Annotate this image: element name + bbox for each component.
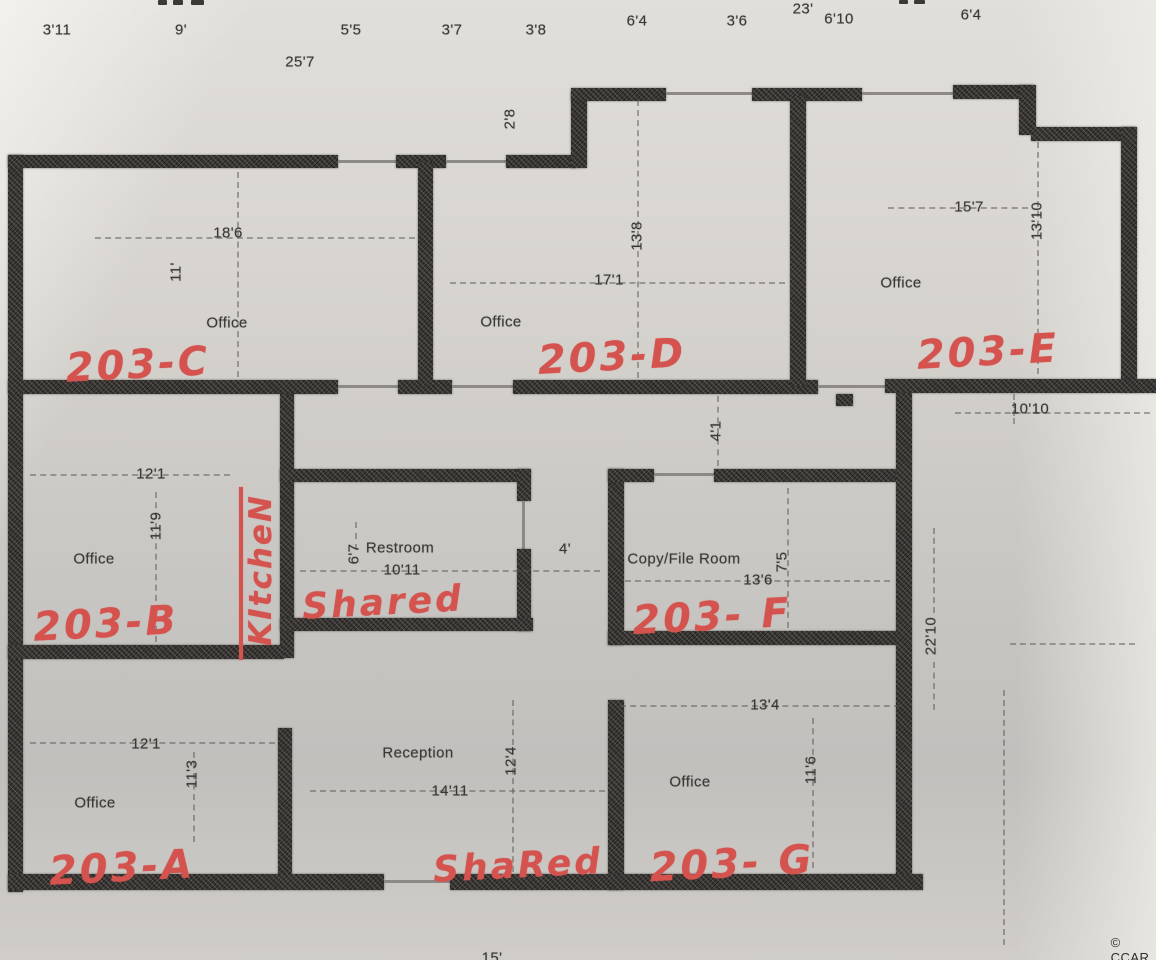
dimension-line [933,662,935,710]
floor-plan: 3'11 9' 5'5 3'7 3'8 6'4 3'6 23' 6'10 6'4… [0,0,1156,960]
wall-segment [608,469,624,645]
room-width-label: 17'1 [594,272,624,289]
room-width-label: 15'7 [954,199,984,216]
unit-annotation-203e: 203-E [916,325,1061,378]
cropped-text-fragment [899,0,908,4]
door-opening [654,473,714,476]
wall-segment [418,162,433,386]
wall-segment [896,393,912,888]
door-opening [818,385,885,388]
wall-segment [836,394,853,406]
room-type-label: Office [480,314,521,331]
dim-label: 6'4 [961,7,982,24]
room-type-label: Office [669,774,710,791]
dim-label: 10'10 [1011,401,1049,418]
room-width-label: 12'1 [136,466,166,483]
door-opening [862,92,955,95]
cropped-text-fragment [173,0,183,5]
room-width-label: 18'6 [213,225,243,242]
room-depth-label: 11'9 [148,512,165,540]
room-width-label: 13'4 [750,697,780,714]
wall-segment [517,469,531,501]
wall-segment [8,155,23,892]
shared-annotation: Shared [301,578,465,627]
wall-segment [608,700,624,890]
room-type-label: Office [880,275,921,292]
cropped-text-fragment [158,0,167,5]
wall-segment [506,155,576,168]
cropped-text-fragment [914,0,925,4]
room-depth-label: 13'10 [1029,202,1046,240]
dim-label: 2'8 [502,109,519,130]
unit-annotation-203g: 203- G [648,837,815,892]
door-opening [522,501,525,549]
room-depth-label: 11'3 [184,760,201,788]
room-depth-label: 11' [168,262,185,282]
dim-label: 3'8 [526,22,547,39]
dimension-line [1010,643,1135,645]
room-type-label: Office [74,795,115,812]
wall-segment [1121,127,1137,392]
wall-segment [571,88,666,101]
unit-annotation-203c: 203-C [65,338,212,391]
dim-label: 6'10 [824,11,854,28]
cropped-text-fragment [191,0,204,5]
dim-label: 23' [793,1,814,18]
door-opening [452,385,513,388]
wall-segment [278,728,292,888]
room-type-label: Restroom [366,540,434,557]
dim-label: 4' [559,541,571,558]
dim-label: 25'7 [285,54,315,71]
dimension-line [237,172,239,377]
dimension-line [95,237,415,239]
room-width-label: 12'1 [131,736,161,753]
unit-annotation-203d: 203-D [537,330,688,384]
dimension-line [955,412,1150,414]
dim-label-cropped: 15' [482,950,503,960]
dim-label: 6'4 [627,13,648,30]
room-depth-label: 7'5 [774,552,791,573]
room-depth-label: 11'6 [803,756,820,784]
room-depth-label: 12'4 [503,746,520,776]
room-type-label: Office [206,315,247,332]
room-type-label: Copy/File Room [627,551,740,568]
dim-label: 9' [175,22,187,39]
unit-annotation-203f: 203- F [631,590,793,644]
door-opening [338,160,396,163]
dim-label: 22'10 [923,617,940,655]
dimension-line [300,570,600,572]
wall-segment [608,469,654,482]
room-width-label: 14'11 [431,783,468,800]
room-type-label: Office [73,551,114,568]
door-opening [666,92,752,95]
dimension-line [933,528,935,613]
dim-label: 3'7 [442,22,463,39]
dim-label: 3'11 [43,22,71,39]
room-depth-label: 13'8 [629,221,646,251]
dim-label: 5'5 [341,22,362,39]
wall-segment [885,379,1156,393]
wall-segment [8,155,338,168]
wall-segment [571,92,587,168]
door-opening [446,160,506,163]
ccar-watermark: © CCAR [1111,935,1150,960]
unit-annotation-203a: 203-A [48,841,196,895]
wall-segment [280,469,530,482]
dim-label: 4'1 [708,421,725,442]
dimension-line [30,474,230,476]
wall-segment [790,96,806,386]
unit-annotation-203b: 203-B [32,597,180,651]
kitchen-annotation: KItcheN [243,494,279,646]
room-depth-label: 6'7 [346,544,363,565]
room-type-label: Reception [382,745,453,762]
room-width-label: 13'6 [743,572,773,589]
door-opening [338,385,398,388]
room-width-label: 10'11 [383,562,420,579]
wall-segment [714,469,902,482]
wall-segment [752,88,862,101]
dim-label: 3'6 [727,13,748,30]
dimension-line [1003,690,1005,945]
